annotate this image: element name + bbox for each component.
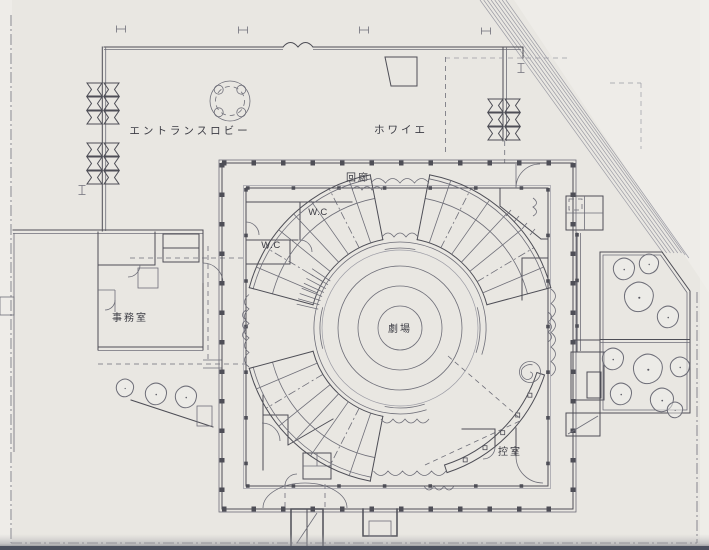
floor-plan: エントランスロビー ホワイエ 回廊 W.C W.C 事務室 劇場 控室: [0, 0, 709, 550]
label-green-room: 控室: [498, 445, 522, 458]
stair-ticks: [297, 269, 331, 309]
label-theater: 劇場: [388, 322, 412, 335]
skylight-circle: [210, 81, 250, 121]
label-foyer: ホワイエ: [374, 124, 428, 136]
photo-bottom-edge: [0, 534, 709, 550]
east-stair-icon: [587, 372, 601, 398]
label-office: 事務室: [112, 311, 148, 324]
southeast-stair-icon: [566, 413, 600, 436]
spiral-stair-icon: [520, 362, 541, 383]
northeast-rooms: [500, 164, 548, 300]
green-room-area: [425, 356, 545, 483]
label-entrance-lobby: エントランスロビー: [129, 125, 250, 137]
label-wc-lower: W.C: [261, 240, 280, 251]
east-annex: [566, 196, 604, 436]
south-porch: [363, 509, 397, 536]
label-wc-upper: W.C: [308, 207, 327, 218]
west-trees: [116, 379, 196, 408]
garden: [600, 252, 690, 418]
main-building: [219, 160, 576, 512]
office-wing: [0, 230, 246, 452]
section-markers: [79, 26, 525, 195]
label-cloister: 回廊: [346, 171, 370, 184]
canopy-stair-icon: [385, 57, 417, 86]
wing-south-stair-icon: [197, 406, 212, 426]
floor-plan-page: エントランスロビー ホワイエ 回廊 W.C W.C 事務室 劇場 控室: [0, 0, 709, 550]
garden-trees: [602, 254, 689, 418]
